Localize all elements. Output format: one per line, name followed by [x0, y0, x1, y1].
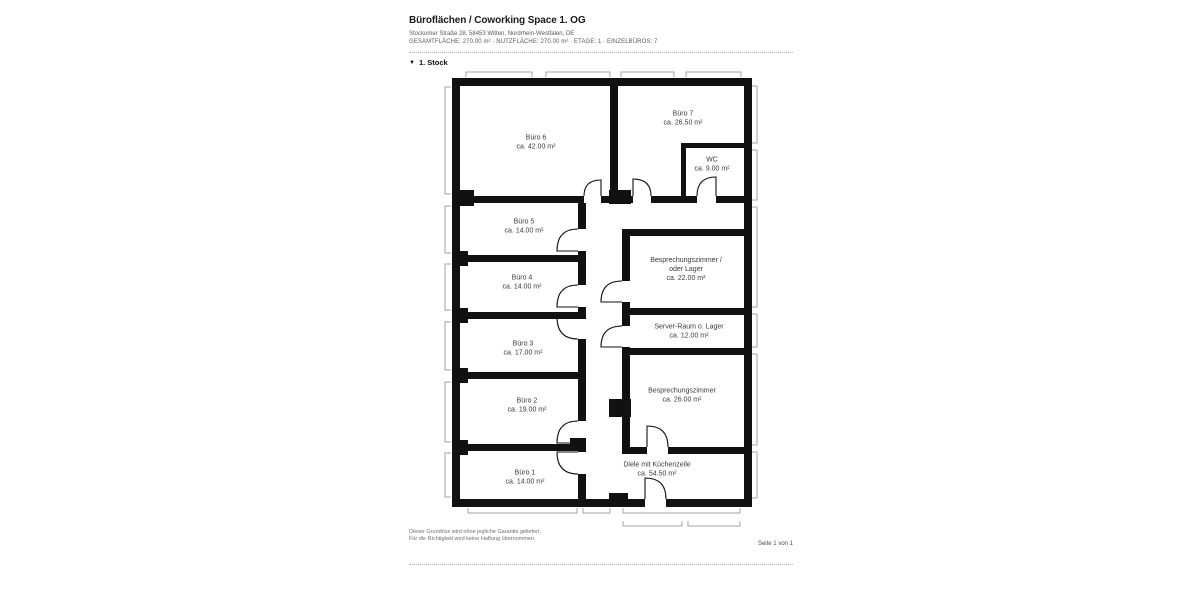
- floor-plan-svg: [438, 58, 782, 536]
- property-address: Stockumer Straße 28, 58453 Witten, Nordr…: [409, 31, 574, 37]
- room-label-buero-6: Büro 6 ca. 42.00 m²: [517, 134, 556, 152]
- room-label-buero-7: Büro 7 ca. 26.50 m²: [664, 110, 703, 128]
- property-meta-line: GESAMTFLÄCHE: 270.00 m² · NUTZFLÄCHE: 27…: [409, 39, 657, 45]
- disclaimer-line-1: Dieser Grundriss wird ohne jegliche Gara…: [409, 529, 541, 536]
- collapse-triangle-icon: ▼: [409, 60, 415, 66]
- room-label-buero-3: Büro 3 ca. 17.00 m²: [504, 340, 543, 358]
- page-indicator: Seite 1 von 1: [758, 541, 793, 547]
- room-label-buero-2: Büro 2 ca. 19.00 m²: [508, 397, 547, 415]
- room-label-wc: WC ca. 9.00 m²: [694, 156, 729, 174]
- room-label-besprechungszimmer: Besprechungszimmer ca. 26.00 m²: [648, 387, 716, 405]
- room-label-buero-1: Büro 1 ca. 14.00 m²: [506, 469, 545, 487]
- disclaimer-line-2: Für die Richtigkeit wird keine Haftung ü…: [409, 536, 541, 543]
- room-label-server-raum: Server-Raum o. Lager ca. 12.00 m²: [654, 323, 723, 341]
- floorplan-page: { "header": { "title": "Büroflächen / Co…: [0, 0, 1200, 600]
- room-label-buero-4: Büro 4 ca. 14.00 m²: [503, 274, 542, 292]
- page-title: Büroflächen / Coworking Space 1. OG: [409, 15, 586, 26]
- room-label-buero-5: Büro 5 ca. 14.00 m²: [505, 218, 544, 236]
- disclaimer-text: Dieser Grundriss wird ohne jegliche Gara…: [409, 529, 541, 543]
- header-divider: [409, 52, 793, 53]
- room-label-diele: Diele mit Küchenzeile ca. 54.50 m²: [623, 461, 690, 479]
- room-label-besprechungszimmer-oder-lager: Besprechungszimmer / oder Lager ca. 22.0…: [643, 257, 729, 283]
- footer-divider: [409, 564, 793, 565]
